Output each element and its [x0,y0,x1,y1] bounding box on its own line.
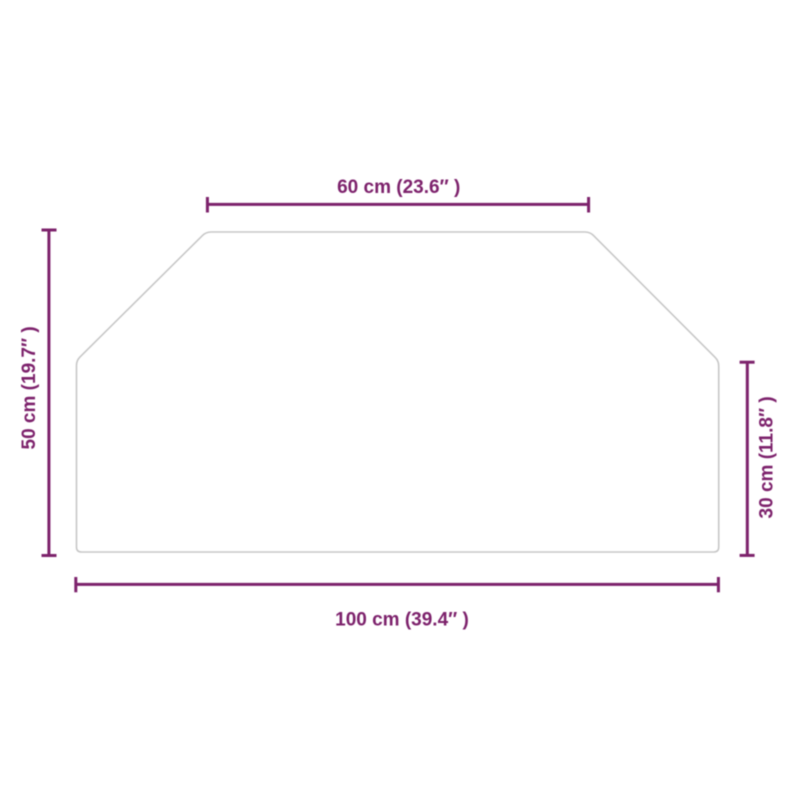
svg-text:50 cm (19.7″ ): 50 cm (19.7″ ) [19,326,40,449]
svg-text:60 cm (23.6″ ): 60 cm (23.6″ ) [337,177,460,198]
svg-text:100 cm (39.4″ ): 100 cm (39.4″ ) [335,610,469,631]
svg-text:30 cm (11.8″ ): 30 cm (11.8″ ) [757,396,778,518]
